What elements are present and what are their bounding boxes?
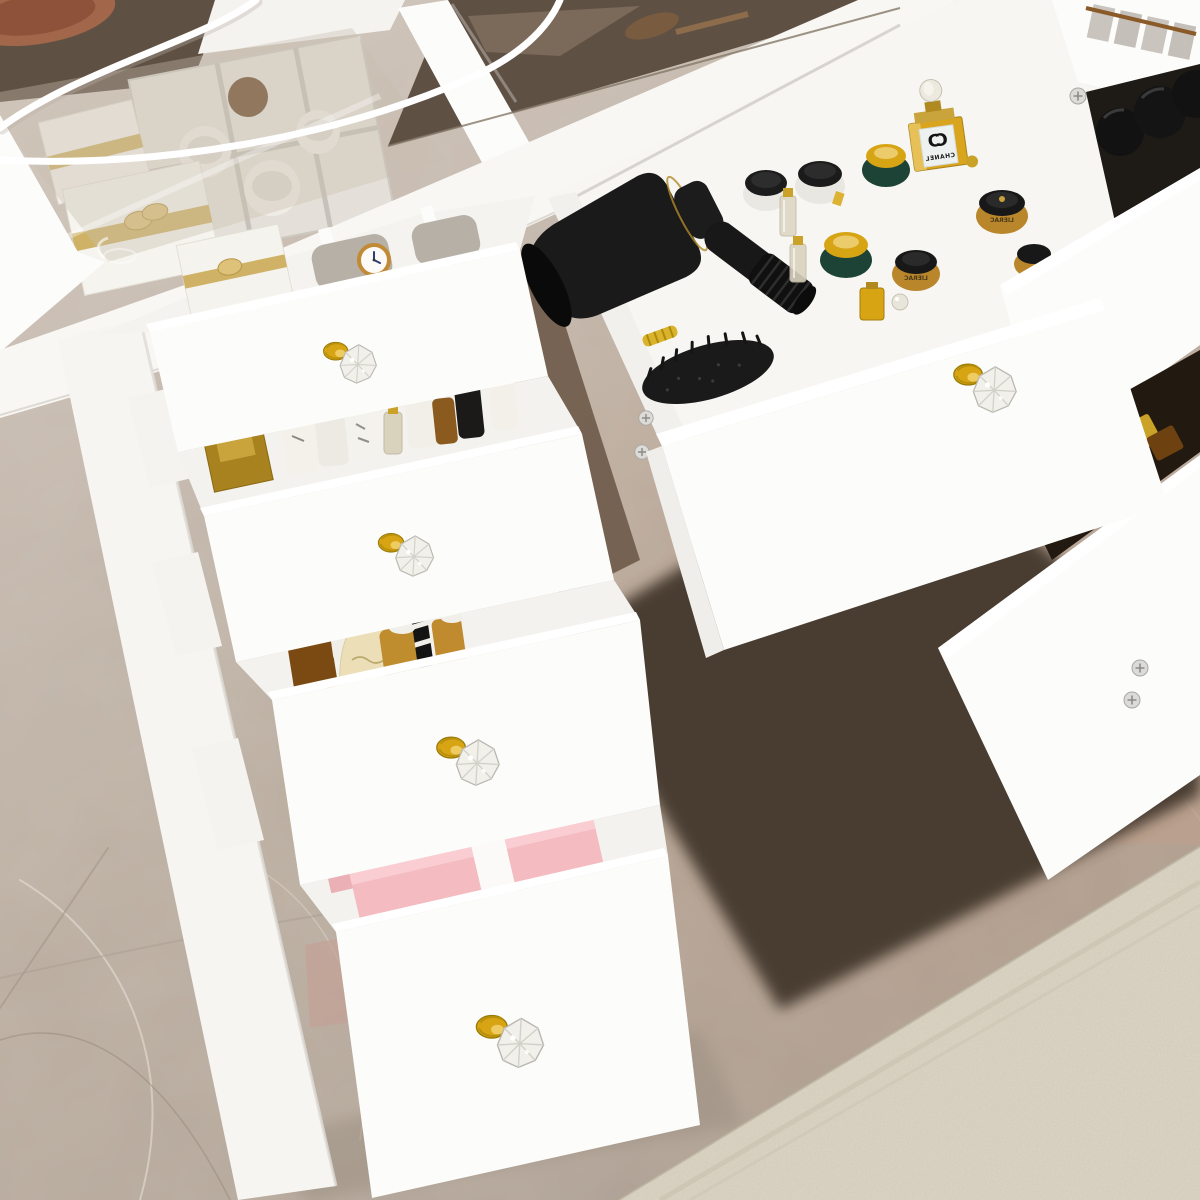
jar-brand-text-2: LIERAC (903, 275, 927, 282)
vanity-product-photo: LIERAC LIERAC (0, 0, 1200, 1200)
screw (1124, 692, 1140, 708)
screw (639, 411, 653, 425)
glass-stopper (892, 294, 908, 310)
amber-jar-black-lid-2: LIERAC (892, 250, 940, 291)
green-jar-gold-lid-2 (820, 232, 872, 278)
green-jar-gold-lid (862, 144, 910, 187)
vial-gold-cap (783, 188, 793, 197)
amber-jar-black-lid: LIERAC (976, 190, 1028, 234)
screw (1132, 660, 1148, 676)
vial-gold-cap-2 (793, 236, 803, 245)
screw (1070, 88, 1086, 104)
cc-logo: C C (927, 130, 950, 153)
wrist-watch (359, 245, 389, 275)
scene: LIERAC LIERAC (0, 0, 1200, 1200)
jar-brand-text: LIERAC (989, 217, 1013, 224)
gold-flask (860, 282, 884, 320)
lid-gold-dot (999, 196, 1005, 202)
